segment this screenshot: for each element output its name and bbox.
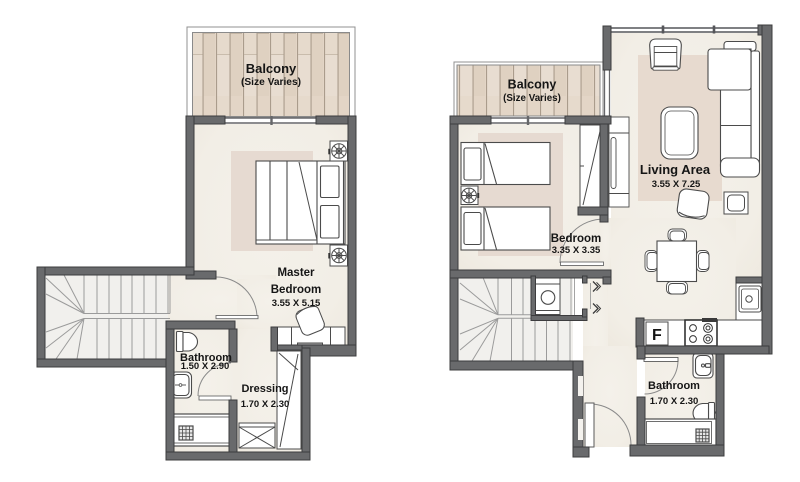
svg-text:(Size Varies): (Size Varies) [503, 93, 561, 104]
svg-text:Dressing: Dressing [241, 383, 288, 395]
svg-text:Bedroom: Bedroom [271, 284, 321, 296]
svg-text:Bedroom: Bedroom [551, 233, 601, 245]
svg-text:3.55 X 5.15: 3.55 X 5.15 [272, 298, 321, 309]
svg-text:Master: Master [277, 267, 315, 279]
svg-text:Bathroom: Bathroom [648, 380, 700, 392]
svg-text:3.55 X 7.25: 3.55 X 7.25 [652, 179, 701, 190]
svg-text:Balcony: Balcony [246, 61, 297, 76]
svg-text:Living Area: Living Area [640, 162, 711, 177]
svg-text:1.50 X 2.90: 1.50 X 2.90 [181, 361, 230, 372]
svg-text:Balcony: Balcony [508, 78, 557, 92]
svg-text:1.70 X 2.30: 1.70 X 2.30 [650, 396, 699, 407]
svg-text:3.35 X 3.35: 3.35 X 3.35 [552, 245, 601, 256]
svg-text:1.70 X 2.30: 1.70 X 2.30 [241, 399, 290, 410]
svg-text:(Size Varies): (Size Varies) [241, 77, 301, 88]
svg-text:F: F [652, 327, 662, 344]
